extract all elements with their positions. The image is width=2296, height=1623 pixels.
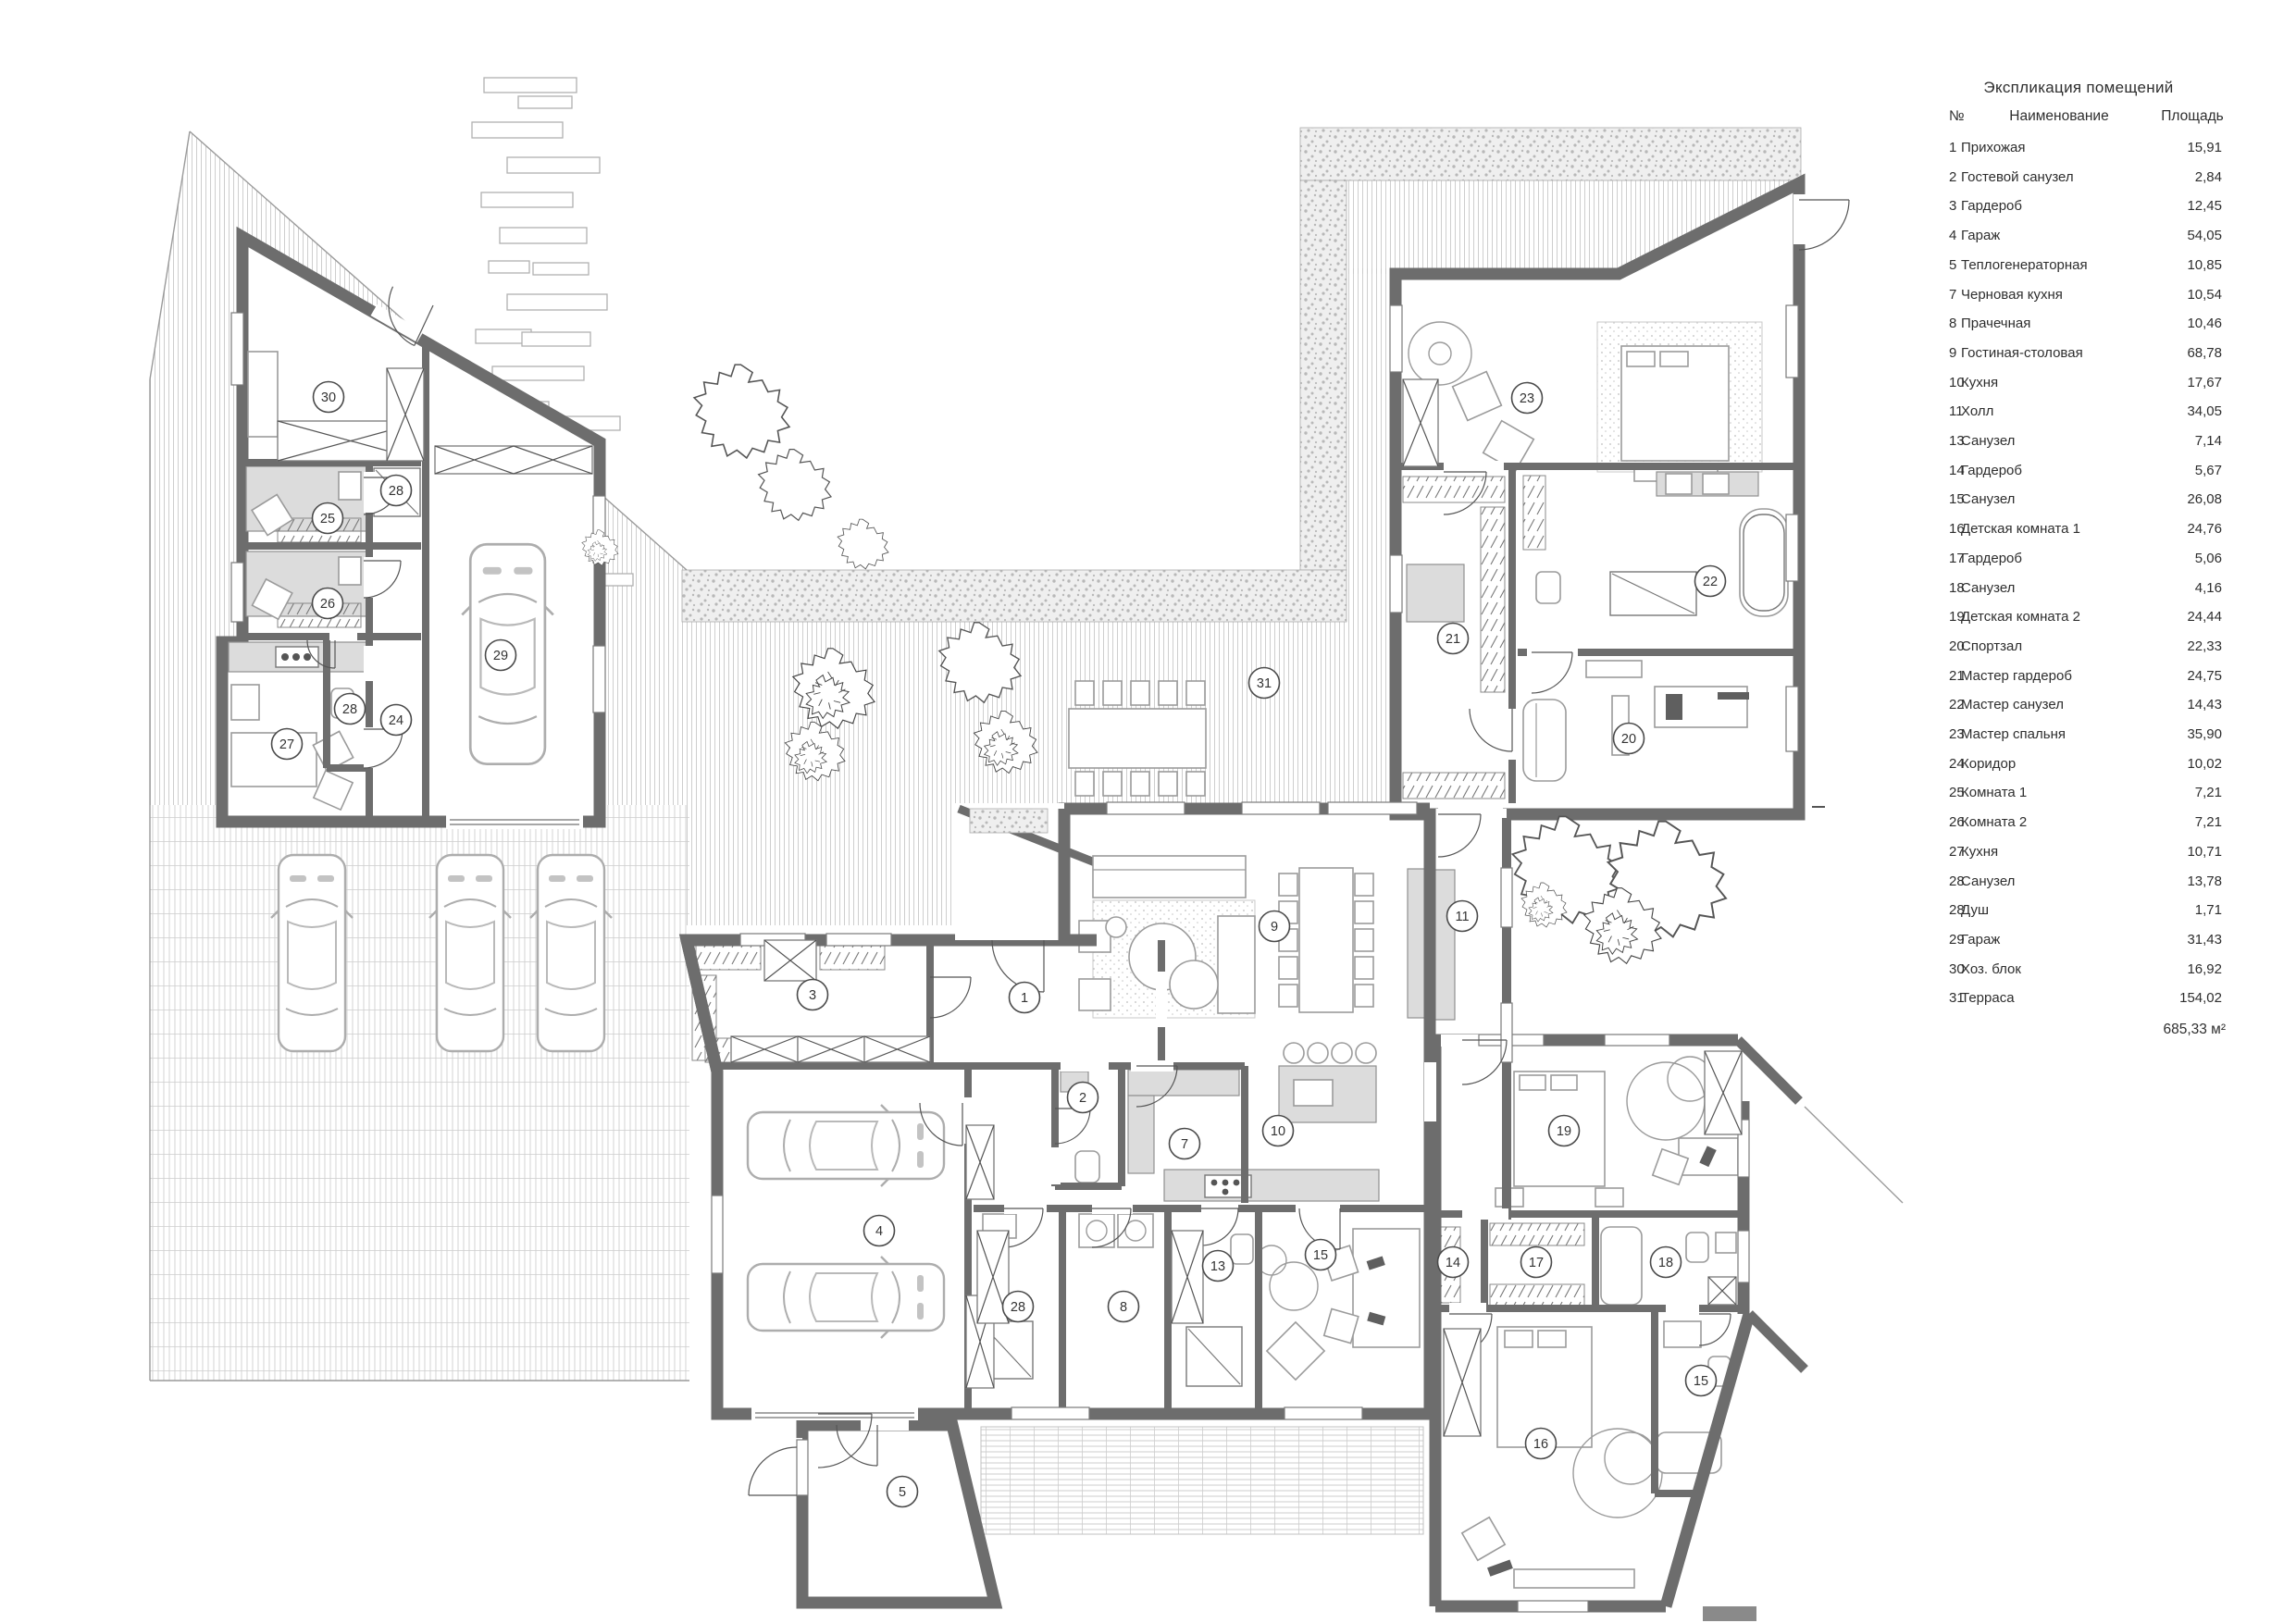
room-marker-18: 18	[1651, 1247, 1682, 1278]
svg-text:24: 24	[389, 713, 403, 728]
legend-cell: 25	[1930, 778, 1961, 808]
legend-cell: Гостиная-столовая	[1961, 339, 2157, 368]
legend-cell: 14	[1930, 456, 1961, 486]
legend-cell: 11	[1930, 397, 1961, 427]
legend-cell: Детская комната 2	[1961, 602, 2157, 632]
pebble-band-bottom	[682, 570, 1347, 622]
room-marker-3: 3	[798, 980, 828, 1010]
legend-cell: 20	[1930, 632, 1961, 662]
legend-row: 19Детская комната 224,44	[1930, 602, 2228, 632]
legend-cell: 15	[1930, 485, 1961, 514]
legend-cell: 35,90	[2157, 720, 2228, 750]
legend-cell: Санузел	[1961, 867, 2157, 897]
boiler-room-shell	[802, 1425, 995, 1603]
legend-header: № Наименование Площадь	[1930, 108, 2228, 125]
legend-row: 23Мастер спальня35,90	[1930, 720, 2228, 750]
legend-row: 17Гардероб5,06	[1930, 544, 2228, 574]
legend-cell: 26	[1930, 808, 1961, 837]
room-marker-24: 24	[381, 705, 412, 736]
legend-cell: 3	[1930, 192, 1961, 221]
legend-cell: 68,78	[2157, 339, 2228, 368]
legend-row: 20Спортзал22,33	[1930, 632, 2228, 662]
svg-text:4: 4	[875, 1224, 883, 1239]
legend-cell: 7,21	[2157, 778, 2228, 808]
legend-row: 26Комната 27,21	[1930, 808, 2228, 837]
legend-cell: Холл	[1961, 397, 2157, 427]
legend-cell: 17	[1930, 544, 1961, 574]
room-marker-31: 31	[1249, 668, 1280, 699]
legend-cell: 2,84	[2157, 163, 2228, 192]
legend-row: 21Мастер гардероб24,75	[1930, 662, 2228, 691]
legend-cell: 23	[1930, 720, 1961, 750]
legend-cell: 12,45	[2157, 192, 2228, 221]
legend-cell: Гардероб	[1961, 456, 2157, 486]
legend-cell: 22	[1930, 690, 1961, 720]
legend-cell: Прачечная	[1961, 309, 2157, 339]
legend-cell: 29	[1930, 925, 1961, 955]
room-marker-27: 27	[272, 729, 303, 760]
legend-cell: 14,43	[2157, 690, 2228, 720]
svg-text:14: 14	[1446, 1256, 1460, 1270]
svg-text:11: 11	[1455, 910, 1469, 924]
terrace-south-strip	[981, 1427, 1423, 1534]
svg-text:8: 8	[1120, 1300, 1127, 1315]
svg-text:28: 28	[1011, 1300, 1025, 1315]
svg-text:20: 20	[1621, 732, 1636, 747]
svg-text:23: 23	[1520, 391, 1534, 406]
room-marker-11: 11	[1447, 901, 1478, 932]
svg-text:28: 28	[389, 484, 403, 499]
svg-text:15: 15	[1313, 1248, 1328, 1263]
legend-cell: 5,67	[2157, 456, 2228, 486]
legend-cell: Санузел	[1961, 574, 2157, 603]
paving-grid-left	[150, 805, 689, 1381]
room-marker-4: 4	[864, 1216, 895, 1246]
room-marker-19: 19	[1549, 1116, 1580, 1146]
svg-text:28: 28	[342, 702, 357, 717]
legend-cell: Терраса	[1961, 984, 2157, 1013]
room-marker-23: 23	[1512, 383, 1543, 414]
legend-row: 22Мастер санузел14,43	[1930, 690, 2228, 720]
room-marker-28: 28	[381, 476, 412, 506]
svg-text:3: 3	[809, 988, 816, 1003]
legend-cell: 24,76	[2157, 514, 2228, 544]
legend-cell: 26,08	[2157, 485, 2228, 514]
legend-cell: 13,78	[2157, 867, 2228, 897]
legend-row: 15Санузел26,08	[1930, 485, 2228, 514]
legend-cell: 8	[1930, 309, 1961, 339]
legend-cell: 28	[1930, 896, 1961, 925]
legend-row: 10Кухня17,67	[1930, 368, 2228, 398]
legend-cell: 7	[1930, 280, 1961, 310]
legend-cell: 10,85	[2157, 251, 2228, 280]
room-marker-1: 1	[1010, 983, 1040, 1013]
legend-cell: Черновая кухня	[1961, 280, 2157, 310]
room-marker-22: 22	[1695, 566, 1726, 597]
legend-cell: 10,54	[2157, 280, 2228, 310]
room-marker-8: 8	[1109, 1292, 1139, 1322]
legend-row: 7Черновая кухня10,54	[1930, 280, 2228, 310]
legend-row: 3Гардероб12,45	[1930, 192, 2228, 221]
legend-row: 31Терраса154,02	[1930, 984, 2228, 1013]
legend-row: 16Детская комната 124,76	[1930, 514, 2228, 544]
room-marker-15: 15	[1306, 1240, 1336, 1270]
svg-text:19: 19	[1557, 1124, 1571, 1139]
room-marker-25: 25	[313, 503, 343, 534]
floor-plan-page: 1234578910111314151516171819202122232425…	[0, 0, 2296, 1623]
legend-row: 2Гостевой санузел2,84	[1930, 163, 2228, 192]
legend-cell: 17,67	[2157, 368, 2228, 398]
legend-row: 4Гараж54,05	[1930, 221, 2228, 251]
legend-row: 18Санузел4,16	[1930, 574, 2228, 603]
svg-text:1: 1	[1021, 991, 1028, 1006]
svg-text:17: 17	[1529, 1256, 1544, 1270]
legend-cell: 5	[1930, 251, 1961, 280]
legend-cell: 4	[1930, 221, 1961, 251]
room-marker-14: 14	[1438, 1247, 1469, 1278]
legend-row: 8Прачечная10,46	[1930, 309, 2228, 339]
svg-text:10: 10	[1271, 1124, 1285, 1139]
svg-text:18: 18	[1658, 1256, 1673, 1270]
legend-row: 28Санузел13,78	[1930, 867, 2228, 897]
legend-cell: 21	[1930, 662, 1961, 691]
legend-title: Экспликация помещений	[1930, 80, 2228, 96]
legend-cell: 16,92	[2157, 955, 2228, 985]
svg-text:7: 7	[1181, 1137, 1188, 1152]
legend-row: 1Прихожая15,91	[1930, 133, 2228, 163]
room-marker-15: 15	[1686, 1366, 1717, 1396]
room-marker-28: 28	[335, 694, 366, 725]
svg-text:22: 22	[1703, 575, 1718, 589]
room-marker-21: 21	[1438, 624, 1469, 654]
room-marker-2: 2	[1068, 1083, 1098, 1113]
legend-cell: 2	[1930, 163, 1961, 192]
legend-row: 27Кухня10,71	[1930, 837, 2228, 867]
legend-cell: Гардероб	[1961, 544, 2157, 574]
legend-cell: Мастер спальня	[1961, 720, 2157, 750]
svg-text:31: 31	[1257, 676, 1272, 691]
legend-cell: 22,33	[2157, 632, 2228, 662]
tree	[694, 365, 789, 458]
svg-text:30: 30	[321, 390, 336, 405]
legend-cell: 31,43	[2157, 925, 2228, 955]
svg-text:16: 16	[1533, 1437, 1548, 1452]
legend-cell: 10,46	[2157, 309, 2228, 339]
room-marker-9: 9	[1260, 911, 1290, 942]
terrace-west-hatch	[1347, 268, 1396, 622]
legend-cell: 16	[1930, 514, 1961, 544]
legend-row: 11Холл34,05	[1930, 397, 2228, 427]
legend-rows: 1Прихожая15,912Гостевой санузел2,843Гард…	[1930, 133, 2228, 1013]
legend-cell: 9	[1930, 339, 1961, 368]
legend-col-no: №	[1930, 108, 1961, 125]
legend-cell: 24,44	[2157, 602, 2228, 632]
legend-row: 28Душ1,71	[1930, 896, 2228, 925]
legend-cell: Комната 2	[1961, 808, 2157, 837]
legend-row: 9Гостиная-столовая68,78	[1930, 339, 2228, 368]
pebble-band-left	[1300, 180, 1347, 570]
legend-cell: Теплогенераторная	[1961, 251, 2157, 280]
legend-row: 5Теплогенераторная10,85	[1930, 251, 2228, 280]
room-marker-20: 20	[1614, 724, 1644, 754]
legend-cell: Спортзал	[1961, 632, 2157, 662]
room-marker-7: 7	[1170, 1129, 1200, 1159]
legend-cell: 30	[1930, 955, 1961, 985]
tree	[759, 450, 831, 521]
svg-text:21: 21	[1446, 632, 1460, 647]
door-mat	[970, 809, 1048, 833]
legend-cell: Санузел	[1961, 485, 2157, 514]
legend-row: 24Коридор10,02	[1930, 750, 2228, 779]
legend-col-area: Площадь	[2157, 108, 2228, 125]
legend-cell: 24	[1930, 750, 1961, 779]
legend-cell: 54,05	[2157, 221, 2228, 251]
legend-total: 685,33 м²	[1930, 1016, 2228, 1044]
svg-text:26: 26	[320, 597, 335, 612]
legend-cell: 27	[1930, 837, 1961, 867]
legend-cell: 10	[1930, 368, 1961, 398]
legend-cell: 24,75	[2157, 662, 2228, 691]
svg-text:5: 5	[899, 1485, 906, 1500]
legend-cell: 31	[1930, 984, 1961, 1013]
svg-text:9: 9	[1271, 920, 1278, 935]
legend-cell: 7,14	[2157, 427, 2228, 456]
legend-cell: 1	[1930, 133, 1961, 163]
legend-cell: Гараж	[1961, 925, 2157, 955]
legend-cell: Мастер санузел	[1961, 690, 2157, 720]
legend-cell: 13	[1930, 427, 1961, 456]
legend-cell: Коридор	[1961, 750, 2157, 779]
room-marker-17: 17	[1521, 1247, 1552, 1278]
legend-cell: Прихожая	[1961, 133, 2157, 163]
svg-text:27: 27	[279, 737, 294, 752]
svg-text:29: 29	[493, 649, 508, 663]
room-marker-13: 13	[1203, 1251, 1234, 1282]
legend-cell: 34,05	[2157, 397, 2228, 427]
svg-text:13: 13	[1210, 1259, 1225, 1274]
legend-cell: Гараж	[1961, 221, 2157, 251]
legend-cell: 5,06	[2157, 544, 2228, 574]
svg-text:25: 25	[320, 512, 335, 527]
legend-row: 30Хоз. блок16,92	[1930, 955, 2228, 985]
legend-cell: Санузел	[1961, 427, 2157, 456]
svg-text:15: 15	[1694, 1374, 1708, 1389]
legend-cell: 15,91	[2157, 133, 2228, 163]
legend-row: 25Комната 17,21	[1930, 778, 2228, 808]
room-marker-29: 29	[486, 640, 516, 671]
legend-cell: 1,71	[2157, 896, 2228, 925]
room-marker-30: 30	[314, 382, 344, 413]
legend-row: 13Санузел7,14	[1930, 427, 2228, 456]
legend-cell: Кухня	[1961, 837, 2157, 867]
tree	[838, 519, 888, 569]
legend-cell: 7,21	[2157, 808, 2228, 837]
room-marker-10: 10	[1263, 1116, 1294, 1146]
legend-cell: 19	[1930, 602, 1961, 632]
legend-cell: 4,16	[2157, 574, 2228, 603]
legend-cell: Мастер гардероб	[1961, 662, 2157, 691]
legend-cell: Кухня	[1961, 368, 2157, 398]
legend-cell: 10,02	[2157, 750, 2228, 779]
pebble-band-top	[1300, 128, 1801, 180]
legend-cell: 10,71	[2157, 837, 2228, 867]
legend-row: 29Гараж31,43	[1930, 925, 2228, 955]
room-marker-26: 26	[313, 588, 343, 619]
room-marker-28: 28	[1003, 1292, 1034, 1322]
room-marker-5: 5	[887, 1477, 918, 1507]
legend-cell: Хоз. блок	[1961, 955, 2157, 985]
legend-cell: 18	[1930, 574, 1961, 603]
room-marker-16: 16	[1526, 1429, 1557, 1459]
legend-cell: Душ	[1961, 896, 2157, 925]
svg-text:2: 2	[1079, 1091, 1086, 1106]
legend-cell: Гостевой санузел	[1961, 163, 2157, 192]
legend-cell: Комната 1	[1961, 778, 2157, 808]
legend-cell: Детская комната 1	[1961, 514, 2157, 544]
legend-cell: 154,02	[2157, 984, 2228, 1013]
legend-cell: Гардероб	[1961, 192, 2157, 221]
legend-panel: Экспликация помещений № Наименование Пло…	[1930, 80, 2228, 1044]
legend-col-name: Наименование	[1961, 108, 2157, 125]
legend-cell: 28	[1930, 867, 1961, 897]
legend-row: 14Гардероб5,67	[1930, 456, 2228, 486]
